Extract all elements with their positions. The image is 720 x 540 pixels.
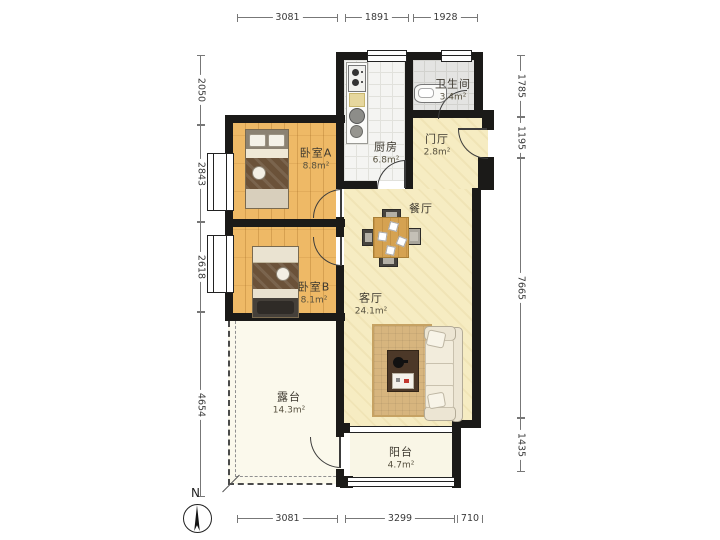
wall-bedroom-divider: [225, 219, 345, 227]
room-name: 露台: [273, 389, 305, 405]
bed-b-deco: [276, 267, 290, 281]
wall-kitchen-right: [405, 52, 413, 189]
room-name: 餐厅: [409, 200, 433, 216]
room-label-dining: 餐厅: [409, 200, 433, 216]
bed-a: [245, 129, 289, 209]
room-label-kitchen: 厨房 6.8m²: [373, 139, 400, 166]
wall-spine-junction: [336, 217, 344, 237]
dim-top-2: 1891: [345, 17, 409, 18]
dim-tick: [477, 14, 478, 22]
wall-right-main: [472, 188, 481, 420]
wall-kitchen-bottom: [336, 181, 377, 189]
door-leaf-kitchen: [404, 160, 406, 188]
window-pane-line: [348, 481, 454, 482]
room-area: 24.1m²: [355, 307, 387, 317]
dim-top-1: 3081: [237, 17, 338, 18]
dim-tick: [337, 14, 338, 22]
bed-a-sheet: [246, 149, 288, 158]
dim-left-4: 4654: [200, 312, 201, 497]
dim-value: 1928: [430, 12, 460, 23]
burner: [352, 79, 359, 86]
wall-bedroom-a-top: [225, 115, 345, 123]
dim-tick: [454, 515, 455, 523]
plate: [396, 236, 408, 248]
dim-tick: [408, 14, 409, 22]
dim-value: 1785: [516, 71, 527, 101]
plate: [388, 221, 399, 232]
tray-item: [404, 379, 409, 383]
door-leaf-bedroom-a: [340, 189, 342, 217]
room-label-terrace: 露台 14.3m²: [273, 389, 305, 416]
north-label: N: [191, 486, 200, 500]
kitchen-counter: [346, 62, 368, 144]
chair-seat: [410, 232, 418, 241]
dim-value: 2618: [196, 252, 207, 282]
wall-entry-pier: [482, 110, 494, 130]
dim-tick: [337, 515, 338, 523]
wall-bathroom-right: [474, 52, 483, 110]
room-area: 4.7m²: [388, 461, 415, 471]
dim-value: 4654: [196, 389, 207, 419]
wall-balcony-stub-top: [340, 423, 350, 433]
window-pane-line: [226, 236, 227, 292]
dim-bottom-3: 710: [457, 518, 483, 519]
sofa-armrest-bottom: [424, 406, 456, 421]
bed-a-deco: [252, 166, 266, 180]
sofa-throw-pillow: [426, 329, 447, 348]
window-pane-line: [213, 236, 214, 292]
stove-knob: [361, 81, 363, 83]
room-name: 卧室A: [300, 145, 333, 161]
cutting-board: [349, 93, 365, 107]
window-pane-line: [226, 154, 227, 210]
dim-right-1: 1785: [520, 55, 521, 117]
dim-right-2: 1195: [520, 117, 521, 158]
dim-value: 2843: [196, 158, 207, 188]
room-label-balcony: 阳台 4.7m²: [388, 444, 415, 471]
bed-b: [252, 246, 299, 318]
dim-tick: [413, 14, 414, 22]
burner: [352, 69, 359, 76]
balcony-top-window: [350, 426, 452, 433]
bathroom-window: [441, 50, 472, 62]
balcony-bottom-window: [348, 477, 454, 487]
stove: [348, 65, 366, 92]
dim-bottom-2: 3299: [345, 518, 455, 519]
dim-tick: [517, 117, 525, 118]
dim-left-2: 2843: [200, 125, 201, 222]
room-name: 客厅: [355, 290, 387, 306]
tray-item: [396, 378, 400, 382]
dim-value: 1891: [362, 12, 392, 23]
bed-a-pillow: [268, 134, 285, 147]
room-label-bedroom-a: 卧室A 8.8m²: [300, 145, 333, 172]
room-name: 阳台: [388, 444, 415, 460]
room-name: 卧室B: [298, 279, 331, 295]
dim-tick: [197, 125, 205, 126]
bedroom-b-window: [207, 235, 234, 293]
pot: [350, 125, 363, 138]
room-area: 14.3m²: [273, 406, 305, 416]
dim-left-1: 2050: [200, 55, 201, 125]
dim-value: 710: [458, 513, 482, 524]
coffee-table: [387, 350, 419, 392]
kitchen-window: [367, 50, 407, 62]
window-pane-line: [213, 154, 214, 210]
bed-b-header: [253, 247, 298, 263]
dim-bottom-1: 3081: [237, 518, 338, 519]
dim-top-3: 1928: [413, 17, 478, 18]
dim-value: 2050: [196, 75, 207, 105]
dim-tick: [482, 515, 483, 523]
window-pane-line: [368, 55, 406, 56]
plate: [377, 231, 387, 241]
dim-tick: [345, 515, 346, 523]
dim-tick: [517, 55, 525, 56]
dim-tick: [237, 14, 238, 22]
room-label-living: 客厅 24.1m²: [355, 290, 387, 317]
wall-spine-mid: [336, 265, 344, 437]
room-area: 8.1m²: [298, 296, 331, 306]
dim-tick: [517, 471, 525, 472]
room-area: 3.4m²: [435, 93, 471, 103]
bedroom-a-window: [207, 153, 234, 211]
window-pane-line: [442, 55, 471, 56]
dim-value: 3299: [385, 513, 415, 524]
dim-tick: [197, 55, 205, 56]
room-name: 厨房: [373, 139, 400, 155]
room-label-bedroom-b: 卧室B 8.1m²: [298, 279, 331, 306]
dim-tick: [237, 515, 238, 523]
dim-left-3: 2618: [200, 222, 201, 312]
door-leaf-bedroom-b: [340, 237, 342, 265]
kitchen-sink: [349, 108, 365, 124]
dim-tick: [197, 222, 205, 223]
wall-entry-block: [478, 157, 494, 190]
door-leaf-terrace: [339, 437, 341, 467]
dim-tick: [517, 418, 525, 419]
dim-value: 1435: [516, 430, 527, 460]
chair-seat: [383, 258, 394, 264]
room-area: 6.8m²: [373, 156, 400, 166]
room-name: 卫生间: [435, 76, 471, 92]
dim-tick: [197, 312, 205, 313]
dining-table: [373, 217, 409, 258]
room-name: 门厅: [424, 131, 451, 147]
sofa-cushion: [425, 363, 454, 387]
door-leaf-entrance: [458, 128, 487, 130]
dim-right-4: 1435: [520, 418, 521, 472]
room-area: 8.8m²: [300, 162, 333, 172]
room-label-foyer: 门厅 2.8m²: [424, 131, 451, 158]
dining-chair-right: [407, 228, 421, 245]
dim-value: 1195: [516, 122, 527, 152]
dim-value: 3081: [272, 513, 302, 524]
dim-right-3: 7665: [520, 158, 521, 418]
dim-tick: [517, 158, 525, 159]
room-label-bathroom: 卫生间 3.4m²: [435, 76, 471, 103]
sofa-throw-pillow: [427, 392, 446, 410]
chair-seat: [365, 233, 372, 242]
bed-a-pillow: [249, 134, 266, 147]
dim-value: 7665: [516, 273, 527, 303]
plate: [385, 245, 396, 256]
tray: [392, 373, 414, 389]
floorplan-canvas: 卧室A 8.8m² 卧室B 8.1m² 厨房 6.8m² 卫生间 3.4m² 门…: [0, 0, 720, 540]
dim-tick: [345, 14, 346, 22]
dim-value: 3081: [272, 12, 302, 23]
stove-knob: [361, 71, 363, 73]
room-area: 2.8m²: [424, 148, 451, 158]
bed-b-footer-cushion: [257, 301, 294, 314]
kettle-handle: [403, 360, 408, 363]
bathtub-inner: [418, 88, 434, 98]
